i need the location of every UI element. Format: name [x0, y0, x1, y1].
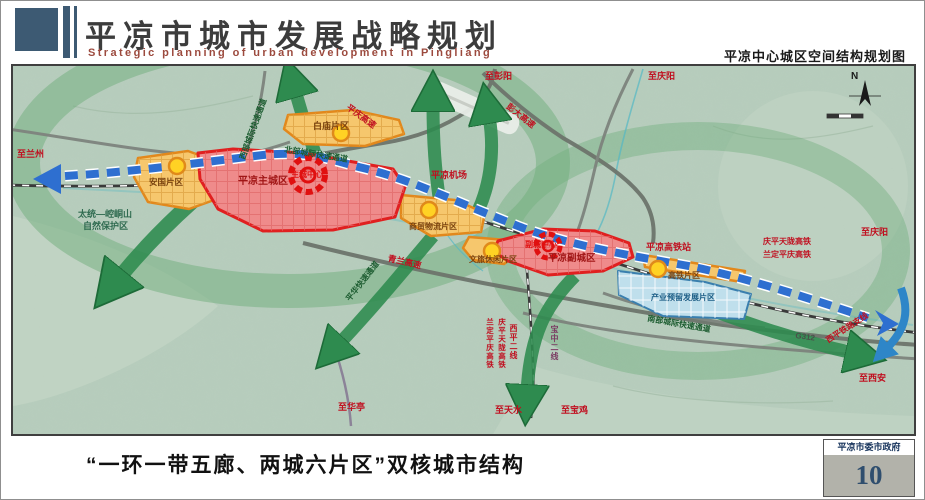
scale-bar: [827, 114, 863, 118]
compass-n-label: N: [851, 72, 858, 82]
label-zhi-lanzhou: 至兰州: [17, 150, 44, 159]
label-nature-reserve-2: 自然保护区: [83, 222, 128, 231]
label-baimiao-area: 白庙片区: [313, 122, 349, 131]
label-ldpq-hsr-vertical: 兰定平庆高铁: [486, 318, 494, 369]
label-sub-city: 平凉副城区: [548, 254, 596, 264]
label-logistics-area: 商贸物流片区: [409, 223, 457, 231]
label-qptl-hsr-vertical: 庆平天陇高铁: [498, 318, 506, 369]
page-number: 10: [824, 455, 914, 496]
label-zhi-huating: 至华亭: [338, 403, 365, 412]
label-zhi-qingyang-right: 至庆阳: [861, 228, 888, 237]
page-number-box: 平凉市委市政府 10: [823, 439, 915, 497]
page-subtitle-en: Strategic planning of urban development …: [88, 47, 492, 59]
label-zhi-tianshui: 至天水: [495, 406, 522, 415]
planning-document-page: 平凉市城市发展战略规划 Strategic planning of urban …: [0, 0, 925, 500]
label-zhi-baoji: 至宝鸡: [561, 406, 588, 415]
label-baozhong-line2: 宝中二线: [550, 325, 558, 361]
label-wenlv-area: 文旅休闲片区: [469, 256, 517, 264]
structure-caption: “一环一带五廊、两城六片区”双核城市结构: [86, 449, 525, 479]
label-hsr-station: 平凉高铁站: [646, 243, 691, 252]
gov-label: 平凉市委市政府: [824, 440, 914, 456]
label-anguo-area: 安国片区: [149, 178, 183, 187]
label-qptl-hsr: 庆平天陇高铁: [763, 238, 811, 246]
label-zhi-xian: 至西安: [859, 374, 886, 383]
header-logo-square: [15, 8, 58, 51]
planning-map: 至兰州 太统—崆峒山 自然保护区 至彭阳 至庆阳 彭大高速 平庆高速 北部城际快…: [11, 64, 916, 436]
label-xiping-line2: 西平二线: [509, 324, 517, 360]
label-nature-reserve-1: 太统—崆峒山: [78, 210, 132, 219]
label-airport: 平凉机场: [431, 171, 467, 180]
label-sub-center: 副城中心: [525, 241, 557, 249]
label-ldpq-hsr: 兰定平庆高铁: [763, 251, 811, 259]
label-main-center: 主城中心: [291, 171, 323, 179]
label-industry-reserve: 产业预留发展片区: [651, 294, 715, 302]
label-zhi-pengyang: 至彭阳: [485, 72, 512, 81]
label-zhi-qingyang-top: 至庆阳: [648, 72, 675, 81]
label-main-city: 平凉主城区: [238, 177, 288, 187]
label-hsr-area: 高铁片区: [668, 272, 700, 280]
map-title: 平凉中心城区空间结构规划图: [724, 46, 906, 65]
header-bar-thin: [74, 6, 77, 58]
header-bar: [63, 6, 70, 58]
